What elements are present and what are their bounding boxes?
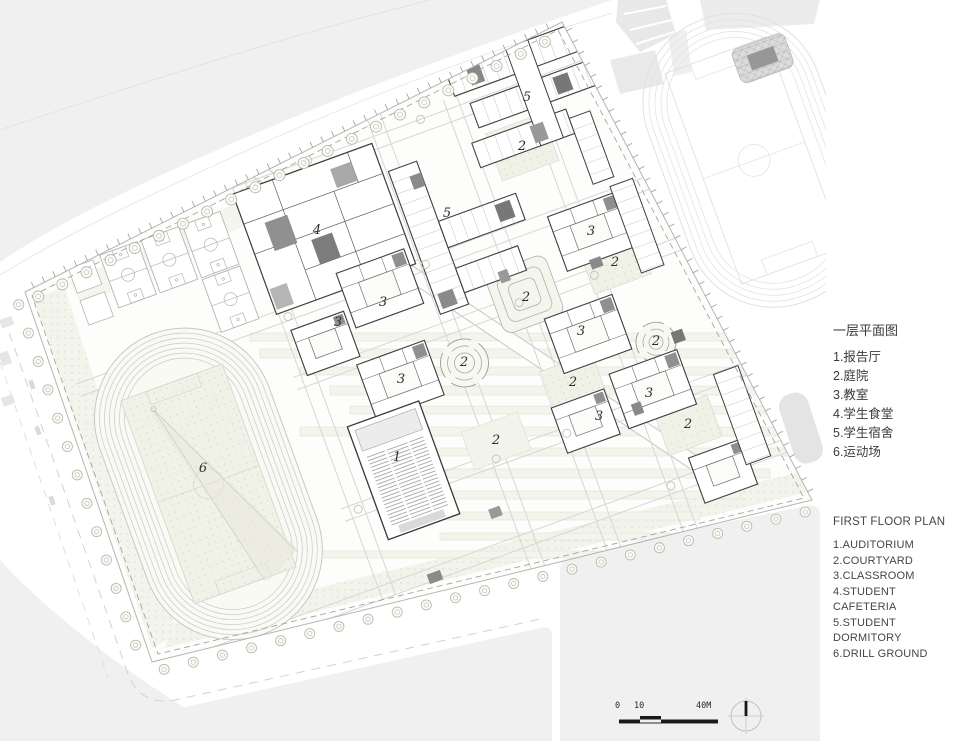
plan-label-3-9: 3 bbox=[587, 224, 595, 239]
plan-label-2-1: 2 bbox=[518, 139, 526, 154]
boundary-tick bbox=[396, 99, 399, 104]
boundary-tick bbox=[802, 477, 807, 480]
boundary-tick bbox=[567, 28, 572, 31]
legend-en-title: FIRST FLOOR PLAN bbox=[833, 516, 960, 528]
boundary-tick bbox=[747, 374, 752, 377]
tree-icon bbox=[162, 667, 167, 672]
scale-mark-40m: 40M bbox=[696, 701, 711, 711]
boundary-tick bbox=[460, 66, 463, 71]
legend-zh-item-dormitory: 5.学生宿舍 bbox=[833, 424, 898, 443]
boundary-tick bbox=[585, 63, 590, 66]
boundary-tick bbox=[669, 224, 674, 227]
tree-icon bbox=[26, 331, 31, 336]
tree-icon bbox=[55, 416, 60, 421]
tree-icon bbox=[104, 558, 109, 563]
boundary-tick bbox=[342, 126, 345, 131]
legend-zh-item-drill-ground: 6.运动场 bbox=[833, 443, 898, 462]
boundary-tick bbox=[535, 29, 538, 34]
tree-icon bbox=[715, 531, 720, 536]
boundary-tick bbox=[428, 83, 431, 88]
boundary-tick bbox=[449, 72, 452, 77]
boundary-tick bbox=[192, 201, 195, 206]
tree-icon bbox=[482, 588, 487, 593]
legend-zh-item-cafeteria: 4.学生食堂 bbox=[833, 405, 898, 424]
boundary-tick bbox=[482, 56, 485, 61]
tree-icon bbox=[349, 136, 354, 141]
tree-icon bbox=[220, 653, 225, 658]
context-stadium-canopy bbox=[730, 32, 795, 85]
tree-icon bbox=[308, 631, 313, 636]
tree-icon bbox=[60, 282, 65, 287]
tree-icon bbox=[108, 258, 113, 263]
legend-zh-item-classroom: 3.教室 bbox=[833, 386, 898, 405]
plan-label-2-5: 2 bbox=[460, 355, 468, 370]
plan-label-2-6: 2 bbox=[569, 375, 577, 390]
first-floor-plan-drawing bbox=[0, 0, 960, 741]
plan-label-2-4: 2 bbox=[652, 334, 660, 349]
boundary-tick bbox=[579, 51, 584, 54]
legend-zh-item-auditorium: 1.报告厅 bbox=[833, 348, 898, 367]
tree-icon bbox=[36, 359, 41, 364]
tree-icon bbox=[470, 76, 475, 81]
tree-icon bbox=[301, 161, 306, 166]
tree-icon bbox=[325, 148, 330, 153]
boundary-tick bbox=[385, 104, 388, 109]
tree-icon bbox=[84, 270, 89, 275]
boundary-tick bbox=[633, 155, 638, 158]
tree-icon bbox=[114, 586, 119, 591]
tree-icon bbox=[424, 603, 429, 608]
tree-icon bbox=[337, 624, 342, 629]
tree-icon bbox=[36, 294, 41, 299]
boundary-tick bbox=[663, 212, 668, 215]
boundary-tick bbox=[256, 169, 259, 174]
plan-label-2-7: 2 bbox=[684, 417, 692, 432]
boundary-tick bbox=[321, 137, 324, 142]
tree-icon bbox=[422, 100, 427, 105]
tree-icon bbox=[446, 88, 451, 93]
legend-zh-title: 一层平面图 bbox=[833, 320, 898, 339]
boundary-tick bbox=[160, 217, 163, 222]
boundary-tick bbox=[471, 61, 474, 66]
tree-icon bbox=[599, 560, 604, 565]
boundary-tick bbox=[407, 93, 410, 98]
plan-label-5-18: 5 bbox=[443, 206, 451, 221]
boundary-tick bbox=[289, 153, 292, 158]
boundary-tick bbox=[723, 328, 728, 331]
tree-icon bbox=[570, 567, 575, 572]
boundary-tick bbox=[591, 74, 596, 77]
plan-label-3-15: 3 bbox=[595, 409, 603, 424]
tree-icon bbox=[133, 643, 138, 648]
boundary-tick bbox=[741, 362, 746, 365]
boundary-tick bbox=[729, 339, 734, 342]
plan-label-3-12: 3 bbox=[577, 324, 585, 339]
boundary-tick bbox=[790, 454, 795, 457]
boundary-tick bbox=[639, 166, 644, 169]
legend-en-item-drill-ground: 6.DRILL GROUND bbox=[833, 647, 960, 663]
boundary-tick bbox=[63, 266, 66, 271]
boundary-tick bbox=[525, 34, 528, 39]
plan-label-2-8: 2 bbox=[492, 433, 500, 448]
boundary-tick bbox=[299, 147, 302, 152]
boundary-tick bbox=[31, 282, 34, 287]
legend-en-item-dormitory: 5.STUDENT DORMITORY bbox=[833, 616, 960, 647]
tree-icon bbox=[94, 529, 99, 534]
boundary-tick bbox=[796, 466, 801, 469]
tree-icon bbox=[249, 646, 254, 651]
plan-label-3-10: 3 bbox=[379, 295, 387, 310]
boundary-tick bbox=[117, 239, 120, 244]
tree-icon bbox=[518, 51, 523, 56]
boundary-tick bbox=[784, 443, 789, 446]
boundary-tick bbox=[621, 132, 626, 135]
legend-en-item-courtyard: 2.COURTYARD bbox=[833, 554, 960, 570]
plan-label-2-2: 2 bbox=[611, 255, 619, 270]
legend-en-item-cafeteria: 4.STUDENT CAFETERIA bbox=[833, 585, 960, 616]
boundary-tick bbox=[42, 277, 45, 282]
scale-mark-10: 10 bbox=[634, 701, 644, 711]
boundary-tick bbox=[675, 235, 680, 238]
tree-icon bbox=[65, 444, 70, 449]
boundary-tick bbox=[374, 110, 377, 115]
boundary-tick bbox=[651, 189, 656, 192]
tree-icon bbox=[191, 660, 196, 665]
tree-icon bbox=[494, 64, 499, 69]
plan-label-3-13: 3 bbox=[397, 372, 405, 387]
tree-icon bbox=[124, 615, 129, 620]
boundary-tick bbox=[235, 180, 238, 185]
plan-label-1-0: 1 bbox=[393, 450, 401, 465]
boundary-tick bbox=[759, 397, 764, 400]
legend-en-item-auditorium: 1.AUDITORIUM bbox=[833, 538, 960, 554]
boundary-tick bbox=[214, 190, 217, 195]
boundary-tick bbox=[615, 120, 620, 123]
boundary-tick bbox=[246, 174, 249, 179]
boundary-tick bbox=[681, 247, 686, 250]
tree-icon bbox=[132, 246, 137, 251]
boundary-tick bbox=[96, 250, 99, 255]
boundary-tick bbox=[74, 261, 77, 266]
tree-icon bbox=[180, 221, 185, 226]
boundary-tick bbox=[139, 228, 142, 233]
boundary-tick bbox=[171, 212, 174, 217]
boundary-tick bbox=[53, 271, 56, 276]
legend-zh-item-courtyard: 2.庭院 bbox=[833, 367, 898, 386]
legend-chinese: 一层平面图 1.报告厅 2.庭院 3.教室 4.学生食堂 5.学生宿舍 6.运动… bbox=[833, 320, 898, 462]
boundary-tick bbox=[85, 255, 88, 260]
first-floor-plan-page: 12222222233333334556 0 10 40M 一层平面图 1.报告… bbox=[0, 0, 960, 741]
boundary-tick bbox=[753, 385, 758, 388]
tree-icon bbox=[373, 124, 378, 129]
tree-icon bbox=[366, 617, 371, 622]
tree-icon bbox=[75, 473, 80, 478]
boundary-tick bbox=[267, 164, 270, 169]
plan-label-3-14: 3 bbox=[645, 386, 653, 401]
boundary-tick bbox=[771, 420, 776, 423]
plan-label-5-17: 5 bbox=[523, 90, 531, 105]
tree-icon bbox=[745, 524, 750, 529]
boundary-tick bbox=[645, 178, 650, 181]
boundary-tick bbox=[332, 131, 335, 136]
boundary-tick bbox=[149, 223, 152, 228]
tree-icon bbox=[277, 173, 282, 178]
context-building bbox=[668, 30, 692, 76]
tree-icon bbox=[85, 501, 90, 506]
tree-icon bbox=[46, 388, 51, 393]
tree-icon bbox=[398, 112, 403, 117]
legend-english: FIRST FLOOR PLAN 1.AUDITORIUM 2.COURTYAR… bbox=[833, 516, 960, 662]
boundary-tick bbox=[687, 258, 692, 261]
boundary-tick bbox=[711, 305, 716, 308]
tree-icon bbox=[774, 517, 779, 522]
tree-icon bbox=[395, 610, 400, 615]
boundary-tick bbox=[181, 207, 184, 212]
boundary-tick bbox=[546, 23, 549, 28]
boundary-tick bbox=[778, 431, 783, 434]
tree-icon bbox=[453, 596, 458, 601]
boundary-tick bbox=[353, 120, 356, 125]
tree-icon bbox=[686, 538, 691, 543]
boundary-tick bbox=[278, 158, 281, 163]
boundary-tick bbox=[603, 97, 608, 100]
boundary-tick bbox=[106, 244, 109, 249]
tree-icon bbox=[628, 553, 633, 558]
boundary-tick bbox=[808, 489, 813, 492]
tree-icon bbox=[803, 510, 808, 515]
plan-label-2-3: 2 bbox=[522, 290, 530, 305]
plan-label-3-11: 3 bbox=[334, 315, 342, 330]
boundary-tick bbox=[627, 143, 632, 146]
tree-icon bbox=[253, 185, 258, 190]
tree-icon bbox=[278, 638, 283, 643]
boundary-tick bbox=[128, 234, 131, 239]
tree-icon bbox=[541, 574, 546, 579]
tree-icon bbox=[205, 209, 210, 214]
boundary-tick bbox=[310, 142, 313, 147]
tree-icon bbox=[542, 39, 547, 44]
boundary-tick bbox=[224, 185, 227, 190]
boundary-tick bbox=[417, 88, 420, 93]
boundary-tick bbox=[364, 115, 367, 120]
boundary-tick bbox=[573, 40, 578, 43]
legend-en-item-classroom: 3.CLASSROOM bbox=[833, 569, 960, 585]
tree-icon bbox=[229, 197, 234, 202]
boundary-tick bbox=[609, 109, 614, 112]
tree-icon bbox=[511, 581, 516, 586]
boundary-tick bbox=[735, 351, 740, 354]
boundary-tick bbox=[657, 201, 662, 204]
scale-mark-0: 0 bbox=[615, 701, 620, 711]
tree-icon bbox=[156, 233, 161, 238]
boundary-tick bbox=[693, 270, 698, 273]
tree-icon bbox=[16, 302, 21, 307]
boundary-tick bbox=[439, 77, 442, 82]
boundary-tick bbox=[717, 316, 722, 319]
boundary-tick bbox=[597, 86, 602, 89]
boundary-tick bbox=[699, 281, 704, 284]
plan-label-4-16: 4 bbox=[313, 223, 321, 238]
plan-label-6-19: 6 bbox=[199, 461, 207, 476]
boundary-tick bbox=[705, 293, 710, 296]
tree-icon bbox=[657, 545, 662, 550]
boundary-tick bbox=[765, 408, 770, 411]
boundary-tick bbox=[203, 196, 206, 201]
